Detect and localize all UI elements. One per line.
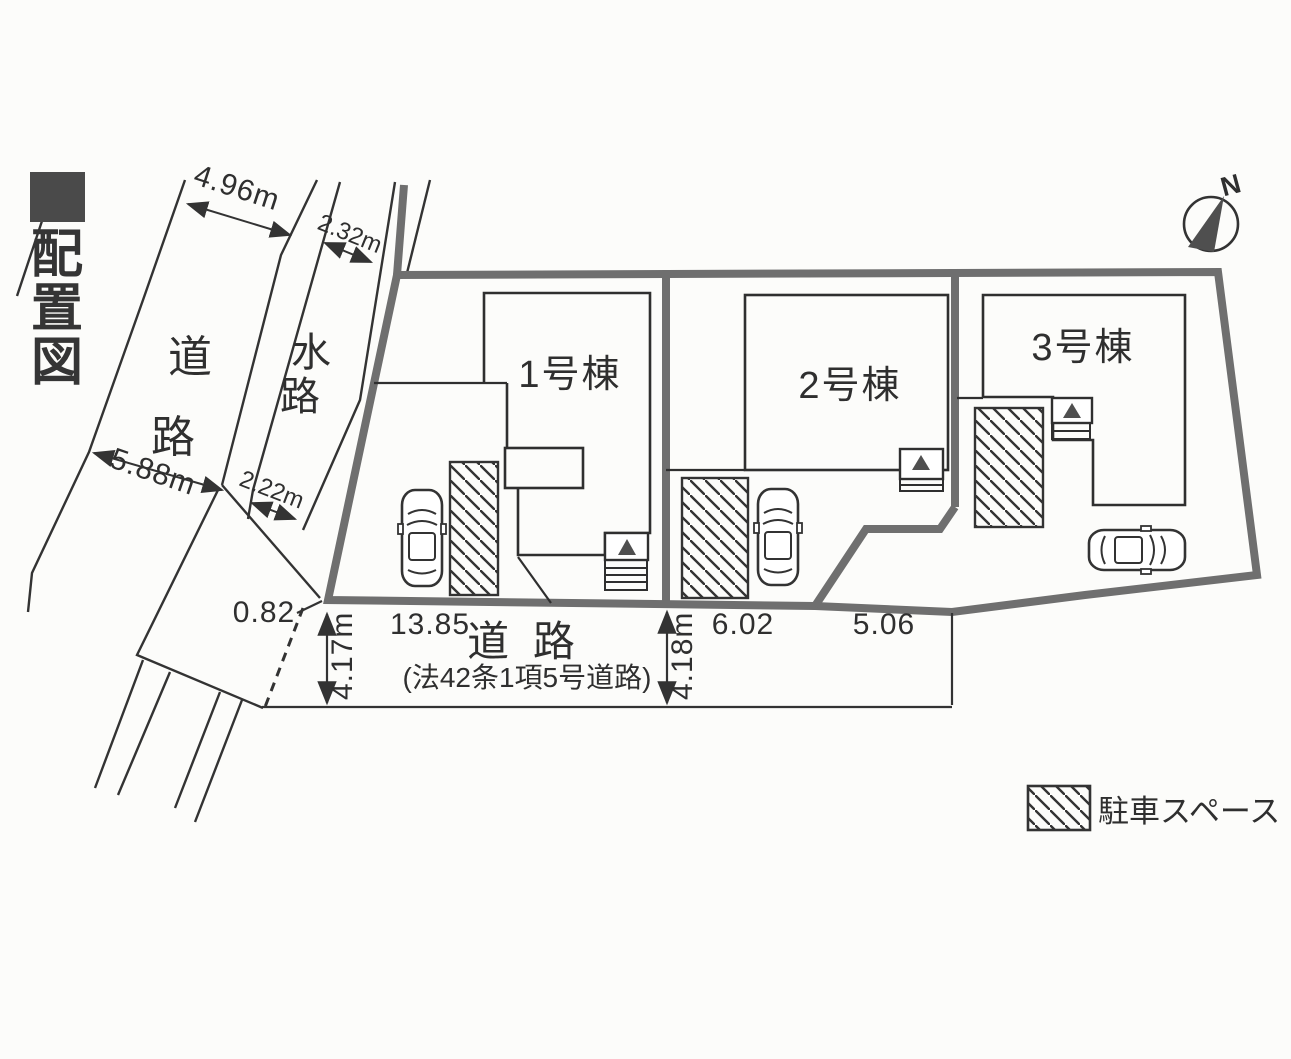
title-square-icon — [30, 172, 85, 222]
waterway-bank-thick-line — [397, 185, 404, 275]
dim-frontage-lot1: 13.85 — [390, 608, 470, 641]
front-road-name: 道 路 — [467, 618, 581, 665]
compass-north-label: N — [1217, 168, 1244, 202]
car-icon-3 — [1089, 526, 1185, 574]
front-road-designation: (法42条1項5号道路) — [403, 662, 652, 693]
dim-road-width-right: 4.18m — [666, 612, 699, 700]
entrance-3 — [1052, 398, 1092, 439]
building-3-label: 3号棟 — [1031, 327, 1134, 369]
compass: N — [1184, 168, 1244, 252]
dim-waterway-bottom: 2.22m — [236, 465, 308, 514]
road-label-char-1: 道 — [168, 333, 212, 382]
left-strip-labels: 道 路 水 路 — [151, 331, 331, 462]
dim-waterway-top: 2.32m — [314, 209, 386, 259]
parking-space-1 — [450, 462, 498, 595]
steps-1 — [605, 560, 647, 590]
dim-corner-offset: 0.82 — [233, 596, 295, 629]
legend-parking-swatch — [1028, 786, 1090, 830]
title-char-3: 図 — [31, 334, 83, 392]
car-icon-1 — [398, 490, 446, 586]
waterway-label-char-2: 路 — [280, 375, 320, 419]
lot1-approach-line — [518, 557, 551, 603]
legend: 駐車スペース — [1028, 786, 1280, 830]
title-char-1: 配 — [31, 226, 83, 284]
legend-parking-label: 駐車スペース — [1098, 794, 1280, 829]
dim-frontage-lot3: 5.06 — [853, 608, 915, 641]
waterway-outer-bank-line — [407, 180, 430, 273]
site-plan-drawing: 4.96m 2.32m 5.88m 2.22m 道 路 水 路 0.82 13.… — [0, 0, 1291, 1059]
dim-frontage-lot2: 6.02 — [712, 608, 774, 641]
entrance-1 — [605, 533, 648, 590]
building-1-label: 1号棟 — [518, 354, 621, 396]
car-icon-2 — [754, 489, 802, 585]
parking-space-2 — [682, 478, 748, 598]
road-label-char-2: 路 — [151, 413, 195, 462]
site-plan-page: 4.96m 2.32m 5.88m 2.22m 道 路 水 路 0.82 13.… — [0, 0, 1291, 1059]
steps-2 — [900, 479, 943, 491]
waterway-label-char-1: 水 — [291, 331, 331, 375]
lot2-corner-boundary — [815, 507, 955, 606]
entrance-2 — [900, 449, 943, 491]
steps-3 — [1052, 423, 1090, 439]
plan-title: 配 置 図 — [30, 172, 85, 392]
title-char-2: 置 — [31, 280, 83, 338]
building-2-label: 2号棟 — [798, 365, 901, 407]
parking-space-3 — [975, 408, 1043, 527]
dim-road-width-left: 4.17m — [326, 612, 359, 700]
road-continuation-lines — [95, 660, 242, 822]
corner-leader-line — [297, 601, 322, 613]
